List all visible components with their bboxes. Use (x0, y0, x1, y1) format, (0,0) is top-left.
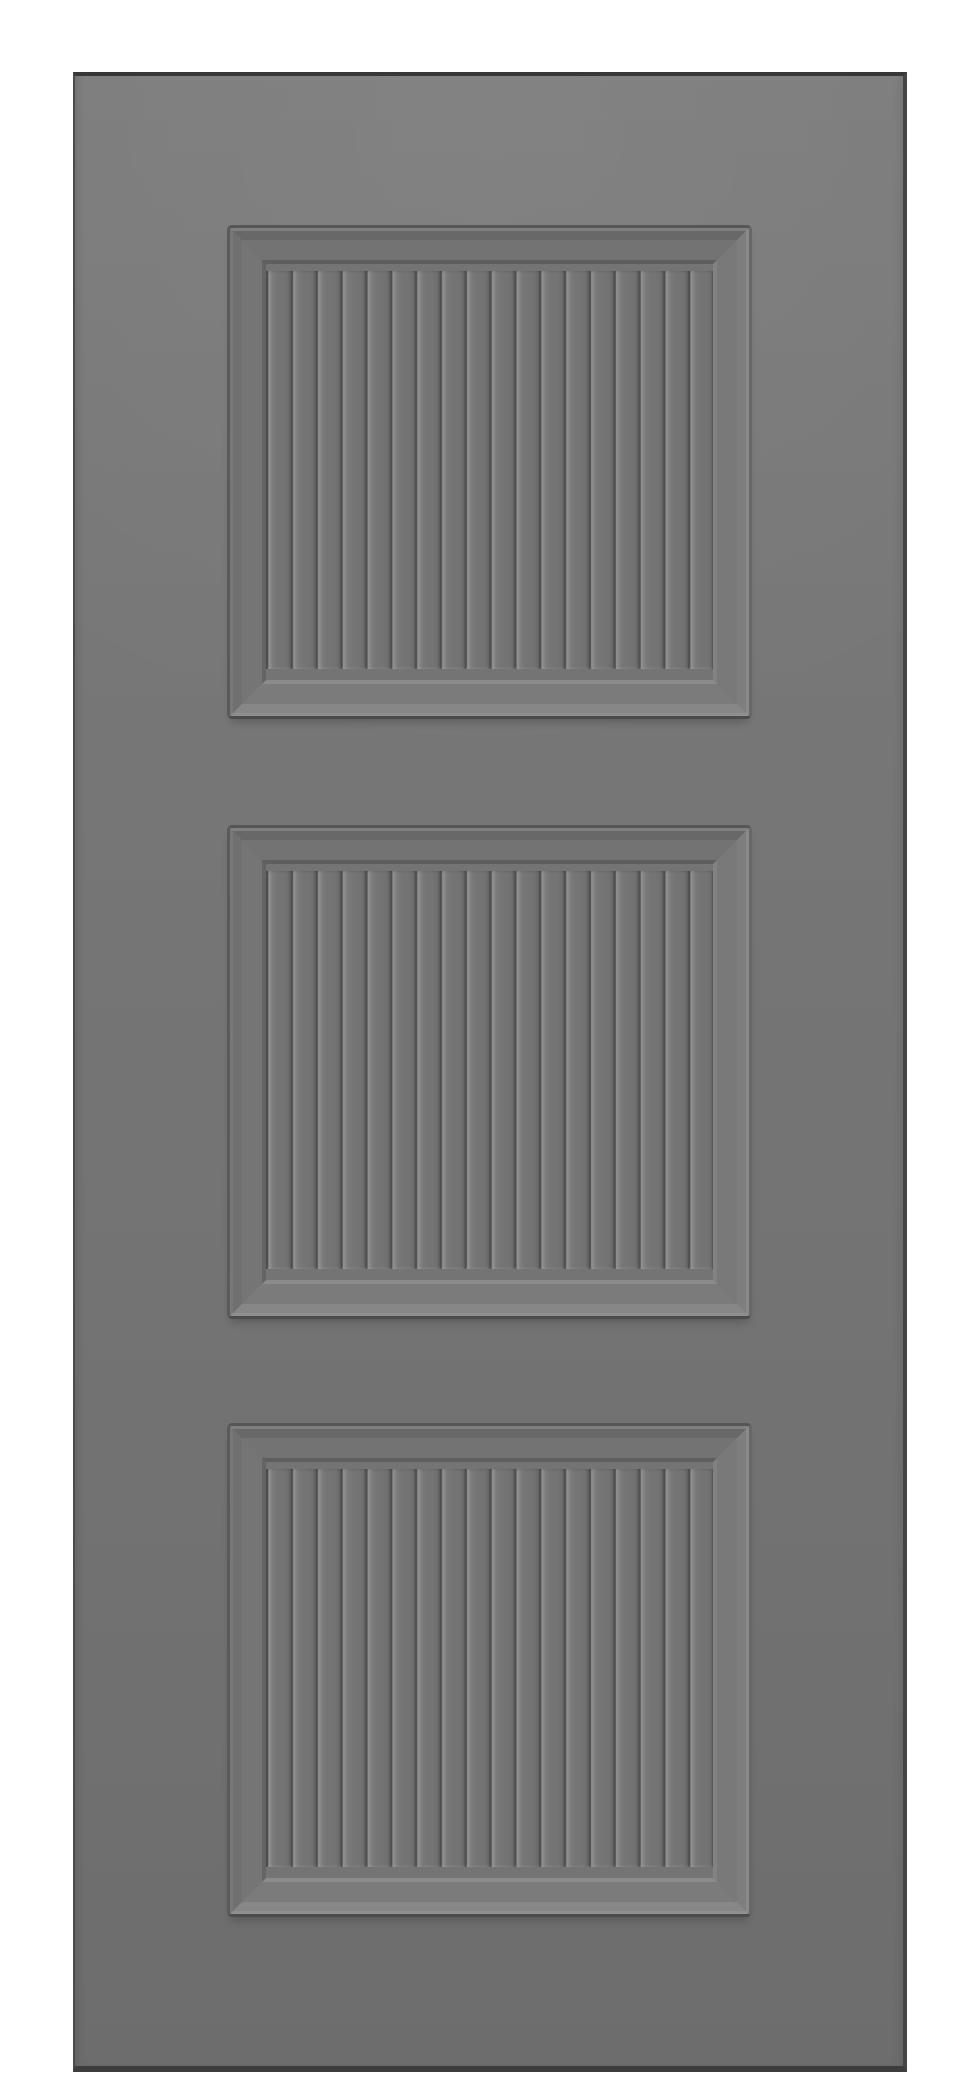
door-panel-top (227, 225, 752, 719)
door-panel-middle (227, 825, 752, 1319)
image-canvas (0, 0, 980, 2100)
beadboard-slat-field (266, 864, 713, 1280)
door (73, 72, 907, 2072)
door-panel-bottom (227, 1423, 752, 1917)
beadboard-slat-field (266, 264, 713, 680)
beadboard-slat-field (266, 1462, 713, 1878)
